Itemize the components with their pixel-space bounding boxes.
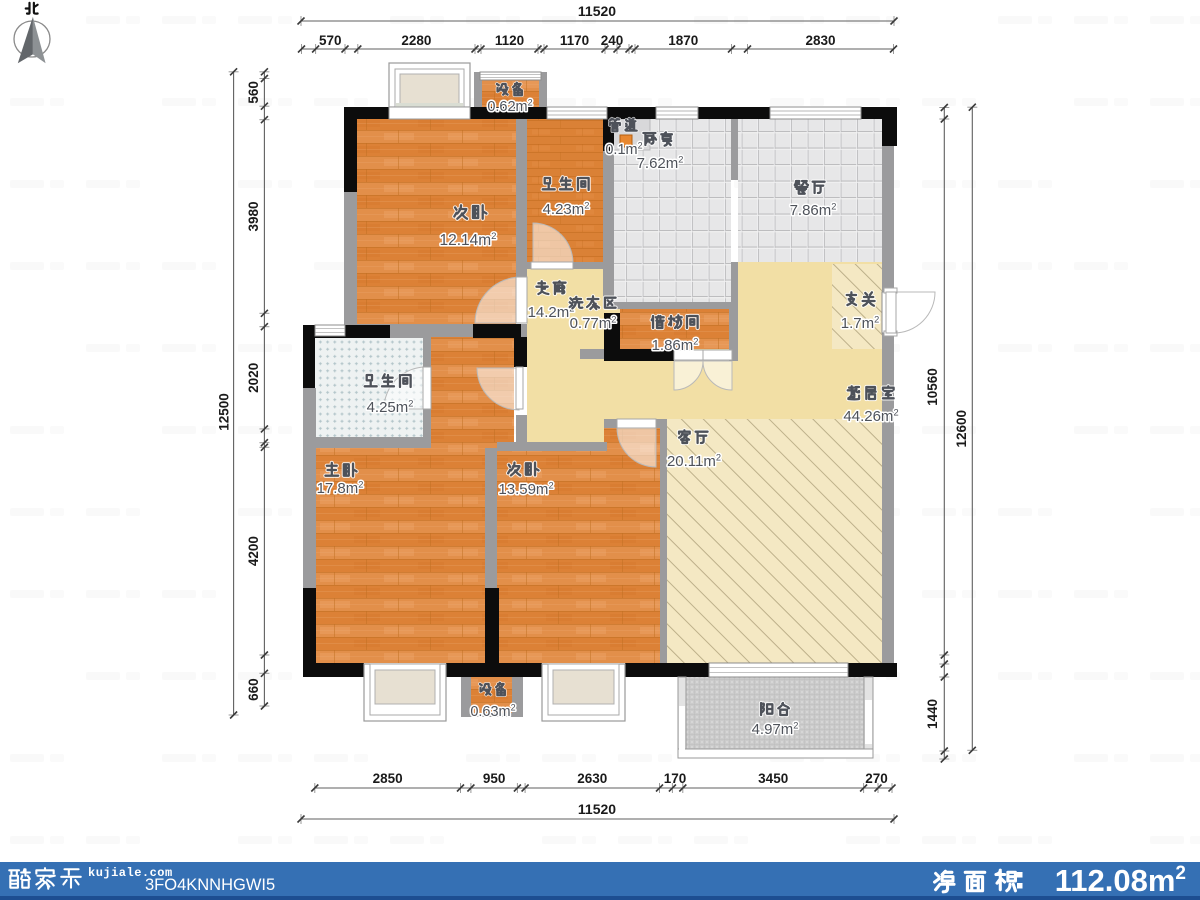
svg-text:0.77m2: 0.77m2 xyxy=(570,314,617,332)
svg-text:4200: 4200 xyxy=(246,536,261,566)
svg-text:1870: 1870 xyxy=(668,33,698,48)
svg-text:1440: 1440 xyxy=(925,699,940,729)
svg-text:4.23m2: 4.23m2 xyxy=(543,200,590,218)
svg-text:13.59m2: 13.59m2 xyxy=(498,480,553,498)
svg-text:3980: 3980 xyxy=(246,201,261,231)
svg-text:2020: 2020 xyxy=(246,363,261,393)
svg-text:2280: 2280 xyxy=(401,33,431,48)
svg-text:12500: 12500 xyxy=(217,393,232,431)
svg-text:240: 240 xyxy=(601,33,624,48)
svg-text:1.86m2: 1.86m2 xyxy=(652,336,699,354)
svg-text:660: 660 xyxy=(246,678,261,701)
svg-text:2850: 2850 xyxy=(373,771,403,786)
svg-text:0.63m2: 0.63m2 xyxy=(470,703,515,721)
svg-text:2830: 2830 xyxy=(805,33,835,48)
svg-text:11520: 11520 xyxy=(578,801,616,817)
svg-text:12.14m2: 12.14m2 xyxy=(439,231,496,249)
svg-text:3FO4KNNHGWI5: 3FO4KNNHGWI5 xyxy=(145,876,275,894)
svg-text:20.11m2: 20.11m2 xyxy=(667,452,721,470)
svg-text:560: 560 xyxy=(246,81,261,104)
svg-text:10560: 10560 xyxy=(925,368,940,406)
svg-text:12600: 12600 xyxy=(954,410,969,448)
svg-text:112.08m2: 112.08m2 xyxy=(1055,863,1186,898)
svg-text:44.26m2: 44.26m2 xyxy=(843,407,898,425)
svg-text:7.86m2: 7.86m2 xyxy=(790,201,837,219)
svg-text:3450: 3450 xyxy=(758,771,788,786)
svg-text:570: 570 xyxy=(319,33,342,48)
svg-text:4.25m2: 4.25m2 xyxy=(367,398,414,416)
svg-text:14.2m2: 14.2m2 xyxy=(528,303,575,321)
svg-text:170: 170 xyxy=(664,771,687,786)
svg-text:17.8m2: 17.8m2 xyxy=(317,479,364,497)
svg-text:7.62m2: 7.62m2 xyxy=(637,154,684,172)
svg-text:2630: 2630 xyxy=(577,771,607,786)
svg-text:950: 950 xyxy=(483,771,506,786)
svg-text:1.7m2: 1.7m2 xyxy=(841,314,880,332)
svg-text:1170: 1170 xyxy=(560,33,589,48)
svg-text:0.62m2: 0.62m2 xyxy=(487,98,532,116)
svg-text:11520: 11520 xyxy=(578,3,616,19)
svg-text:1120: 1120 xyxy=(495,33,524,48)
svg-text:270: 270 xyxy=(865,771,888,786)
svg-text:4.97m2: 4.97m2 xyxy=(752,720,799,738)
